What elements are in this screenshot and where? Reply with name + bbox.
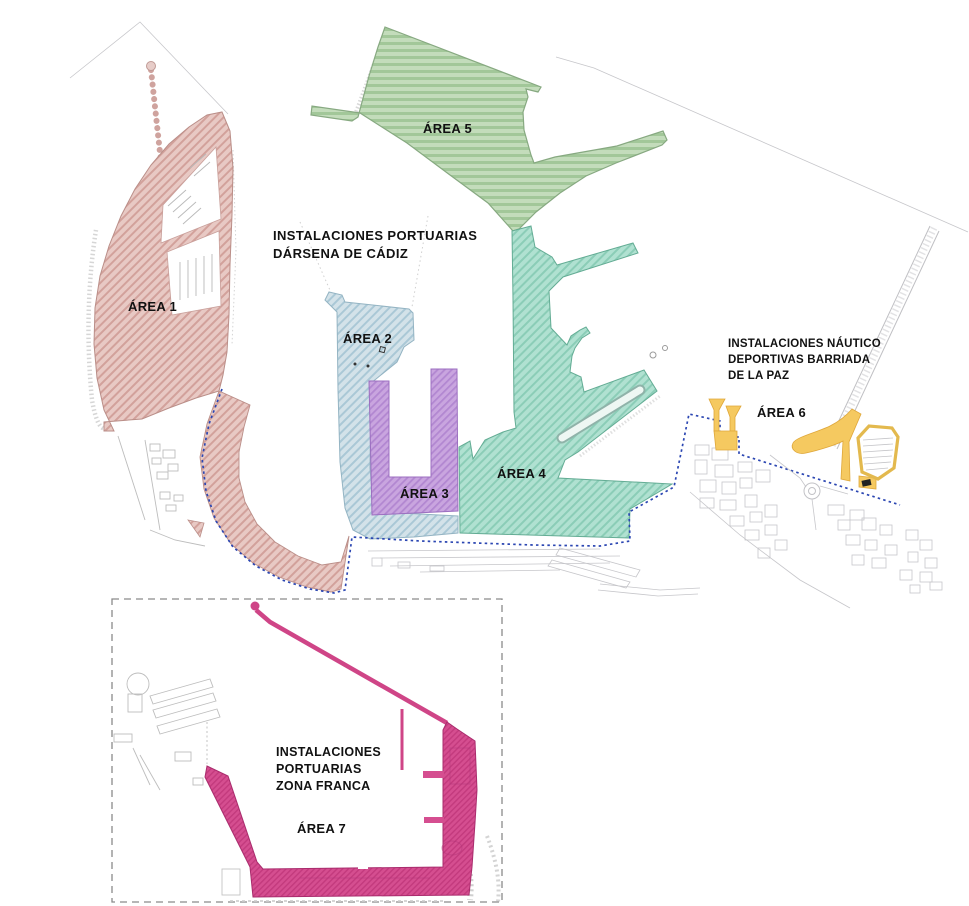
nautico-label-line-2: DEPORTIVAS BARRIADA [728,354,870,366]
area-3-label: ÁREA 3 [400,486,449,501]
roundabout-outer [804,483,820,499]
yellow-quay-block [714,431,737,450]
area-1-label: ÁREA 1 [128,299,177,314]
darsena-label-line-1: INSTALACIONES PORTUARIAS [273,228,477,243]
area-5-group [311,27,667,231]
buoy-circles [650,346,668,359]
area-1-small-triangle [188,520,204,537]
area-1-group [94,62,349,593]
zona-franca-label-line-2: PORTUARIAS [276,762,362,776]
area-5-polygon [311,27,667,231]
port-map-canvas: INSTALACIONES PORTUARIAS DÁRSENA DE CÁDI… [0,0,969,906]
zona-franca-label-line-1: INSTALACIONES [276,745,381,759]
harbor-quay-sketch [368,548,700,596]
area-6-label: ÁREA 6 [757,405,806,420]
area-4-group [459,226,672,538]
nautico-label-line-3: DE LA PAZ [728,370,789,382]
yellow-tee-pier-west [709,399,725,431]
zona-franca-drydock-sketch [114,673,220,790]
darsena-label-line-2: DÁRSENA DE CÁDIZ [273,246,408,261]
area-7-label: ÁREA 7 [297,821,346,836]
inner-town-sketch [118,436,205,546]
area-7-stub-south [424,817,444,823]
zona-franca-label-line-3: ZONA FRANCA [276,779,371,793]
area-6-group [690,226,942,608]
area-1-pier-head [147,62,156,71]
area-1-breakwater [200,391,349,592]
marina-outline [858,426,898,479]
roundabout-inner [809,488,816,495]
area-2-label: ÁREA 2 [343,331,392,346]
area-7-jetty [256,610,447,723]
street-map-sketch [690,445,942,608]
nautico-label-line-1: INSTALACIONES NÁUTICO [728,337,881,350]
area-7-stub-north [423,771,444,778]
area-4-polygon [459,226,672,538]
labels: INSTALACIONES PORTUARIAS DÁRSENA DE CÁDI… [128,121,881,836]
area-7-notch [358,860,368,869]
area-4-label: ÁREA 4 [497,466,546,481]
area-5-label: ÁREA 5 [423,121,472,136]
port-map-page: INSTALACIONES PORTUARIAS DÁRSENA DE CÁDI… [0,0,969,906]
